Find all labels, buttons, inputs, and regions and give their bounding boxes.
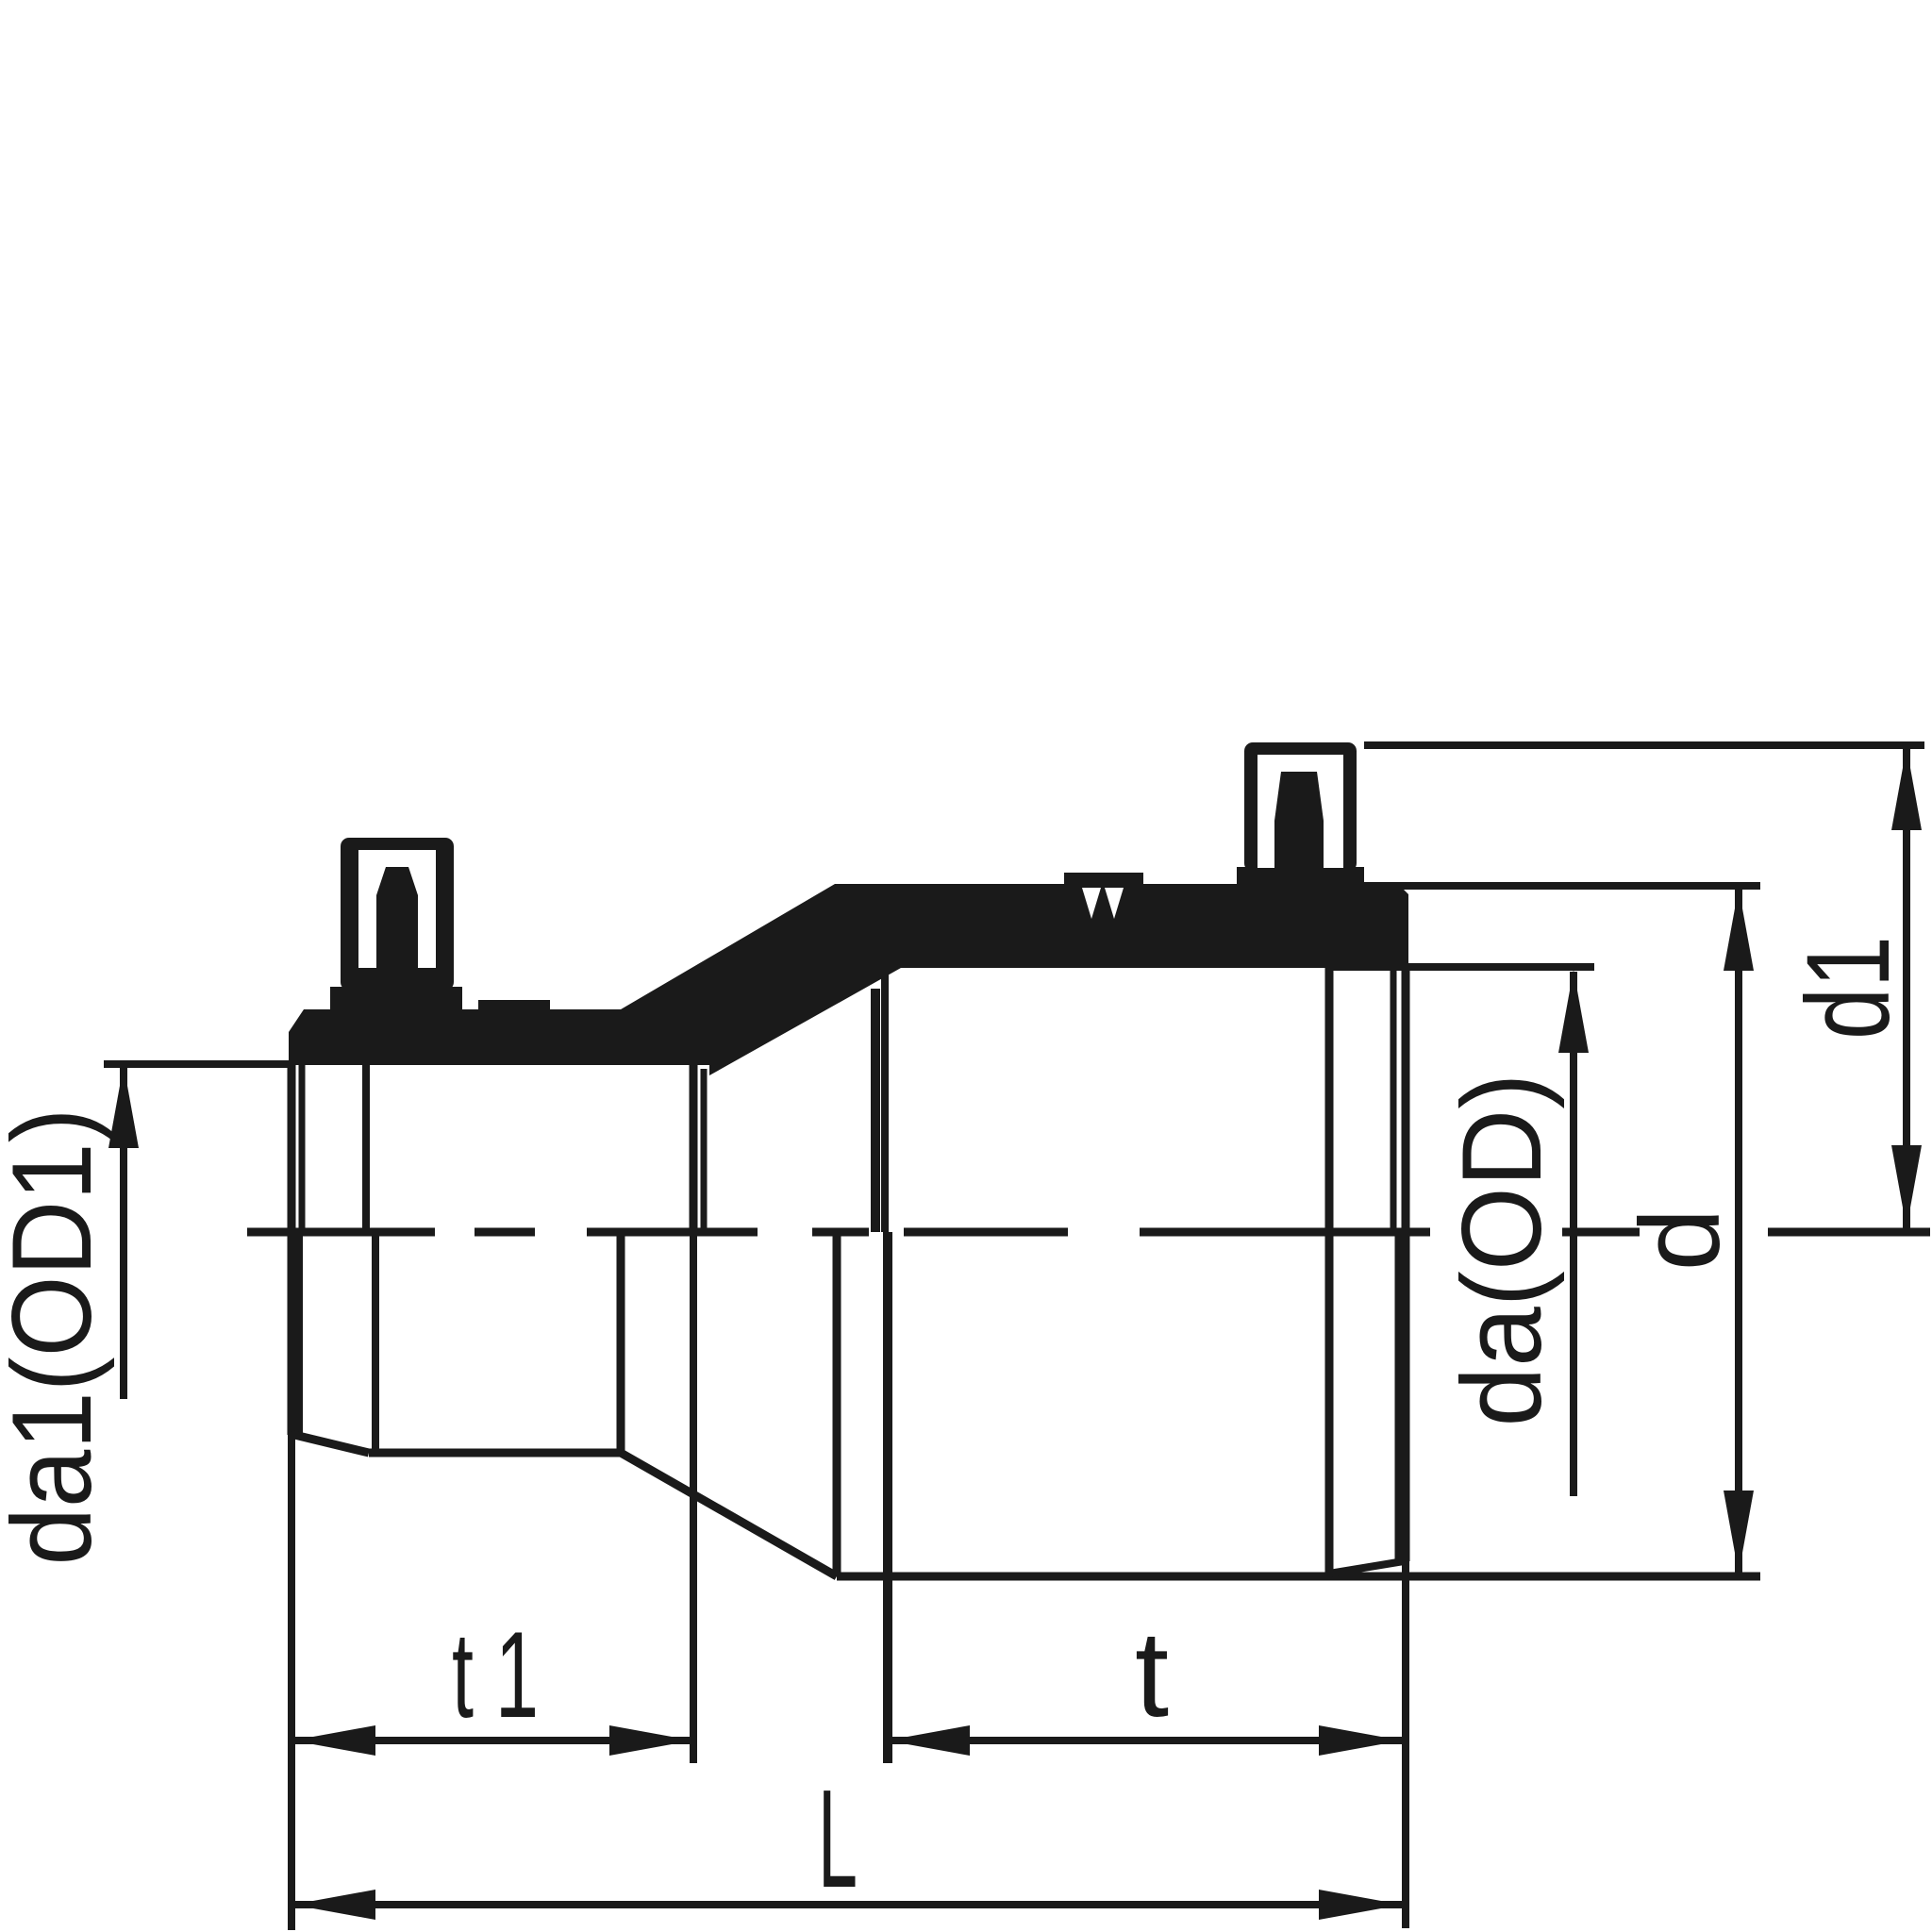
svg-text:da(OD): da(OD)	[1439, 1074, 1565, 1427]
svg-text:t 1: t 1	[452, 1606, 539, 1743]
svg-text:d1: d1	[1783, 936, 1914, 1040]
svg-text:da1(OD1): da1(OD1)	[0, 1108, 115, 1566]
svg-text:L: L	[818, 1761, 858, 1917]
svg-text:d: d	[1617, 1208, 1743, 1272]
svg-text:t: t	[1135, 1605, 1169, 1742]
